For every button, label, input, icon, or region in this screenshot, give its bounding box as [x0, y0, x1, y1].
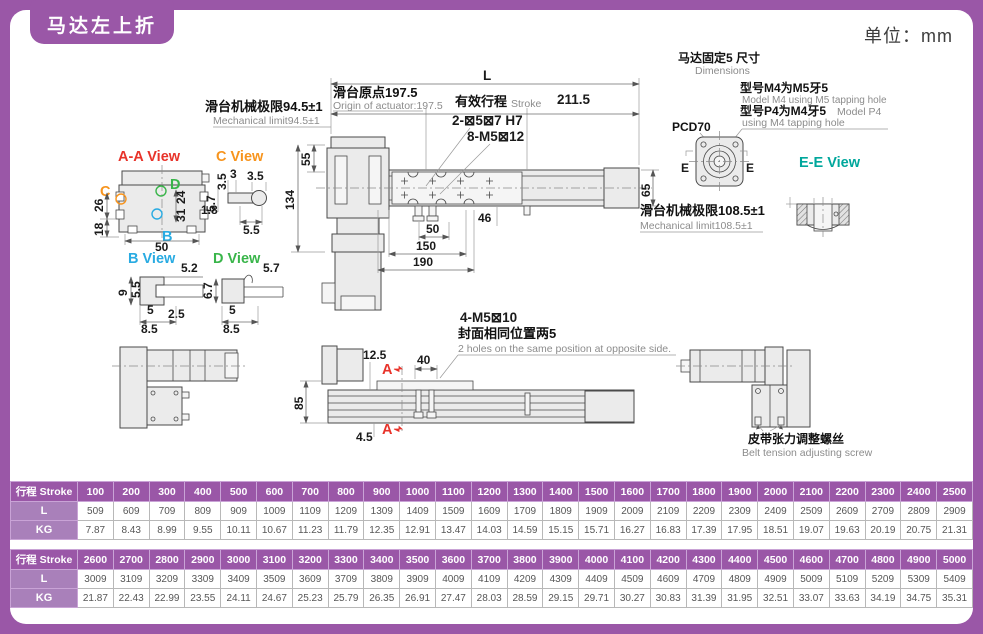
stroke-header-cell: 3000	[221, 550, 257, 570]
dim-46: 46	[478, 211, 492, 225]
value-cell: 33.63	[829, 589, 865, 608]
value-cell: 29.15	[543, 589, 579, 608]
table-row: KG7.878.438.999.5510.1110.6711.2311.7912…	[11, 521, 973, 540]
value-cell: 28.59	[507, 589, 543, 608]
d-view: D View 5.7 6.7 5 8.5	[201, 251, 283, 336]
model-m4-cn: 型号M4为M5牙5	[740, 80, 828, 95]
stroke-header-cell: 2000	[758, 482, 794, 502]
value-cell: 5009	[793, 570, 829, 589]
section-e-left: E	[681, 161, 689, 175]
value-cell: 2909	[937, 502, 973, 521]
b-dim-52: 5.2	[181, 261, 198, 275]
value-cell: 10.67	[256, 521, 292, 540]
belt-screw-cn: 皮带张力调整螺丝	[747, 431, 844, 446]
value-cell: 1509	[435, 502, 471, 521]
dim-190: 190	[413, 255, 433, 269]
value-cell: 3109	[113, 570, 149, 589]
stroke-header-cell: 5000	[937, 550, 973, 570]
stroke-header-row: 行程 Stroke2600270028002900300031003200330…	[11, 550, 973, 570]
stroke-header-cell: 4900	[901, 550, 937, 570]
mech-limit-left-en: Mechanical limit94.5±1	[213, 115, 320, 127]
value-cell: 7.87	[78, 521, 114, 540]
stroke-header-row: 行程 Stroke1002003004005006007008009001000…	[11, 482, 973, 502]
value-cell: 21.87	[78, 589, 114, 608]
ee-view-label: E-E View	[799, 155, 861, 171]
value-cell: 21.31	[937, 521, 973, 540]
value-cell: 4709	[686, 570, 722, 589]
opposite-side-en: 2 holes on the same position at opposite…	[458, 343, 671, 355]
value-cell: 19.63	[829, 521, 865, 540]
dim-134: 134	[283, 190, 297, 210]
value-cell: 34.75	[901, 589, 937, 608]
value-cell: 4809	[722, 570, 758, 589]
row-label-cell: L	[11, 570, 78, 589]
belt-screw-en: Belt tension adjusting screw	[742, 447, 873, 459]
value-cell: 809	[185, 502, 221, 521]
table-row: L300931093209330934093509360937093809390…	[11, 570, 973, 589]
stroke-header-cell: 4200	[650, 550, 686, 570]
value-cell: 9.55	[185, 521, 221, 540]
value-cell: 12.91	[400, 521, 436, 540]
value-cell: 4209	[507, 570, 543, 589]
value-cell: 709	[149, 502, 185, 521]
b-dim-9: 9	[116, 289, 130, 296]
value-cell: 29.71	[579, 589, 615, 608]
value-cell: 1309	[364, 502, 400, 521]
value-cell: 28.03	[471, 589, 507, 608]
value-cell: 1809	[543, 502, 579, 521]
value-cell: 4109	[471, 570, 507, 589]
stroke-header-cell: 2500	[937, 482, 973, 502]
value-cell: 24.11	[221, 589, 257, 608]
stroke-header-cell: 4400	[722, 550, 758, 570]
d-dim-57: 5.7	[263, 261, 280, 275]
value-cell: 3409	[221, 570, 257, 589]
pcd70-label: PCD70	[672, 120, 711, 134]
value-cell: 14.59	[507, 521, 543, 540]
section-a-top: A	[382, 362, 393, 378]
value-cell: 16.83	[650, 521, 686, 540]
spec-table: 行程 Stroke1002003004005006007008009001000…	[10, 481, 973, 540]
value-cell: 2109	[650, 502, 686, 521]
value-cell: 20.19	[865, 521, 901, 540]
stroke-label-en: Stroke	[511, 98, 542, 110]
value-cell: 2609	[829, 502, 865, 521]
stroke-header-cell: 600	[256, 482, 292, 502]
value-cell: 35.31	[937, 589, 973, 608]
value-cell: 2709	[865, 502, 901, 521]
motor-detail-view: 皮带张力调整螺丝 Belt tension adjusting screw	[676, 347, 873, 459]
value-cell: 609	[113, 502, 149, 521]
value-cell: 25.23	[292, 589, 328, 608]
value-cell: 11.79	[328, 521, 364, 540]
value-cell: 4509	[614, 570, 650, 589]
value-cell: 14.03	[471, 521, 507, 540]
value-cell: 3209	[149, 570, 185, 589]
b-dim-5: 5	[147, 303, 154, 317]
value-cell: 4909	[758, 570, 794, 589]
stroke-header-cell: 3800	[507, 550, 543, 570]
value-cell: 19.07	[793, 521, 829, 540]
value-cell: 15.71	[579, 521, 615, 540]
dim-4-5: 4.5	[356, 430, 373, 444]
value-cell: 2009	[614, 502, 650, 521]
stroke-header-cell: 2800	[149, 550, 185, 570]
value-cell: 30.83	[650, 589, 686, 608]
value-cell: 2309	[722, 502, 758, 521]
value-cell: 1609	[471, 502, 507, 521]
value-cell: 3609	[292, 570, 328, 589]
value-cell: 31.39	[686, 589, 722, 608]
stroke-header-cell: 2100	[793, 482, 829, 502]
value-cell: 17.39	[686, 521, 722, 540]
b-dim-85: 8.5	[141, 322, 158, 336]
stroke-header-label: 行程 Stroke	[11, 550, 78, 570]
table-row: L509609709809909100911091209130914091509…	[11, 502, 973, 521]
stroke-header-cell: 4000	[579, 550, 615, 570]
section-e-right: E	[746, 161, 754, 175]
stroke-header-cell: 4300	[686, 550, 722, 570]
stroke-header-cell: 1700	[650, 482, 686, 502]
dim-L: L	[483, 68, 491, 83]
row-label-cell: L	[11, 502, 78, 521]
value-cell: 20.75	[901, 521, 937, 540]
stroke-header-cell: 100	[78, 482, 114, 502]
value-cell: 24.67	[256, 589, 292, 608]
side-view: A A 12.5 40 85 4.5 4-M5⊠10 封面相同位置两5 2 ho…	[292, 310, 676, 444]
value-cell: 15.15	[543, 521, 579, 540]
value-cell: 3909	[400, 570, 436, 589]
value-cell: 4409	[579, 570, 615, 589]
value-cell: 3809	[364, 570, 400, 589]
value-cell: 13.47	[435, 521, 471, 540]
value-cell: 32.51	[758, 589, 794, 608]
stroke-header-cell: 4100	[614, 550, 650, 570]
aa-dim-18: 18	[92, 222, 106, 236]
stroke-header-cell: 4700	[829, 550, 865, 570]
stroke-header-cell: 4500	[758, 550, 794, 570]
dim-65: 65	[639, 183, 653, 197]
aa-dim-26: 26	[92, 198, 106, 212]
value-cell: 8.99	[149, 521, 185, 540]
value-cell: 33.07	[793, 589, 829, 608]
value-cell: 16.27	[614, 521, 650, 540]
stroke-header-cell: 2400	[901, 482, 937, 502]
b-view: B View 5.2 9 5.5 5 2.5 8.5	[116, 251, 203, 336]
row-label-cell: KG	[11, 521, 78, 540]
value-cell: 22.43	[113, 589, 149, 608]
value-cell: 27.47	[435, 589, 471, 608]
value-cell: 2409	[758, 502, 794, 521]
aa-view-label: A-A View	[118, 149, 181, 165]
mech-limit-left-cn: 滑台机械极限94.5±1	[205, 99, 323, 114]
value-cell: 1409	[400, 502, 436, 521]
value-cell: 509	[78, 502, 114, 521]
stroke-header-cell: 3400	[364, 550, 400, 570]
d-dim-85: 8.5	[223, 322, 240, 336]
stroke-header-cell: 1800	[686, 482, 722, 502]
dim-12-5: 12.5	[363, 348, 387, 362]
stroke-header-cell: 2900	[185, 550, 221, 570]
origin-label-en: Origin of actuator:197.5	[333, 100, 443, 112]
c-dim-55: 5.5	[243, 223, 260, 237]
value-cell: 2509	[793, 502, 829, 521]
stroke-header-cell: 3600	[435, 550, 471, 570]
table-row: KG21.8722.4322.9923.5524.1124.6725.2325.…	[11, 589, 973, 608]
value-cell: 3709	[328, 570, 364, 589]
value-cell: 1109	[292, 502, 328, 521]
value-cell: 8.43	[113, 521, 149, 540]
stroke-header-cell: 2300	[865, 482, 901, 502]
d-dim-67: 6.7	[201, 282, 215, 299]
value-cell: 17.95	[722, 521, 758, 540]
stroke-header-cell: 1600	[614, 482, 650, 502]
value-cell: 1209	[328, 502, 364, 521]
stroke-header-cell: 400	[185, 482, 221, 502]
mech-limit-right-en: Mechanical limit108.5±1	[640, 220, 753, 232]
row-label-cell: KG	[11, 589, 78, 608]
stroke-table-1: 行程 Stroke1002003004005006007008009001000…	[10, 481, 973, 540]
motor-fix-title-cn: 马达固定5 尺寸	[678, 50, 760, 65]
dim-150: 150	[416, 239, 436, 253]
mech-limit-right-cn: 滑台机械极限108.5±1	[640, 203, 765, 218]
value-cell: 2809	[901, 502, 937, 521]
stroke-header-cell: 3500	[400, 550, 436, 570]
value-cell: 5409	[937, 570, 973, 589]
value-cell: 26.35	[364, 589, 400, 608]
stroke-header-cell: 1900	[722, 482, 758, 502]
page-title-tab: 马达左上折	[30, 0, 174, 44]
value-cell: 12.35	[364, 521, 400, 540]
motor-fix-title-en: Dimensions	[695, 65, 750, 77]
stroke-table-2: 行程 Stroke2600270028002900300031003200330…	[10, 549, 973, 608]
model-p4-en: using M4 tapping hole	[742, 117, 845, 129]
datasheet-page: L 滑台原点197.5 Origin of actuator:197.5 有效行…	[0, 0, 983, 634]
value-cell: 34.19	[865, 589, 901, 608]
stroke-header-label: 行程 Stroke	[11, 482, 78, 502]
stroke-label-cn: 有效行程	[455, 94, 507, 109]
value-cell: 10.11	[221, 521, 257, 540]
stroke-header-cell: 1100	[435, 482, 471, 502]
c-dim-35a: 3.5	[215, 173, 229, 190]
b-dim-25: 2.5	[168, 307, 185, 321]
stroke-header-cell: 4800	[865, 550, 901, 570]
value-cell: 31.95	[722, 589, 758, 608]
value-cell: 30.27	[614, 589, 650, 608]
groove-d-letter: D	[170, 177, 180, 193]
value-cell: 909	[221, 502, 257, 521]
value-cell: 4009	[435, 570, 471, 589]
top-view-motor	[322, 137, 389, 310]
page-title: 马达左上折	[47, 7, 157, 38]
holes-label-1: 2-⊠5⊠7 H7	[452, 113, 523, 128]
c-view-label: C View	[216, 149, 264, 165]
dim-55: 55	[299, 152, 313, 166]
stroke-header-cell: 500	[221, 482, 257, 502]
stroke-header-cell: 800	[328, 482, 364, 502]
stroke-header-cell: 3200	[292, 550, 328, 570]
section-a-bottom: A	[382, 422, 393, 438]
value-cell: 11.23	[292, 521, 328, 540]
value-cell: 1009	[256, 502, 292, 521]
c-dim-18: 1.8	[201, 203, 218, 217]
unit-label: 单位：mm	[864, 22, 953, 48]
value-cell: 5109	[829, 570, 865, 589]
stroke-header-cell: 300	[149, 482, 185, 502]
value-cell: 1909	[579, 502, 615, 521]
stroke-header-cell: 2600	[78, 550, 114, 570]
groove-c-letter: C	[100, 184, 111, 200]
stroke-header-cell: 3300	[328, 550, 364, 570]
aa-view: A-A View C D B 26 18 50	[92, 149, 209, 254]
value-cell: 5309	[901, 570, 937, 589]
b-dim-55: 5.5	[129, 281, 143, 298]
stroke-header-cell: 1500	[579, 482, 615, 502]
value-cell: 3009	[78, 570, 114, 589]
stroke-header-cell: 1300	[507, 482, 543, 502]
aa-dim-31: 31	[174, 208, 188, 222]
model-p4-cn: 型号P4为M4牙5	[740, 103, 826, 118]
d-view-label: D View	[213, 251, 261, 267]
c-view: C View 3.5 3 3.5 5.7 1.8 5.5	[201, 149, 267, 237]
value-cell: 2209	[686, 502, 722, 521]
value-cell: 1709	[507, 502, 543, 521]
stroke-header-cell: 4600	[793, 550, 829, 570]
spec-table: 行程 Stroke2600270028002900300031003200330…	[10, 549, 973, 608]
b-view-label: B View	[128, 251, 176, 267]
stroke-header-cell: 2200	[829, 482, 865, 502]
stroke-header-cell: 3700	[471, 550, 507, 570]
value-cell: 3509	[256, 570, 292, 589]
value-cell: 26.91	[400, 589, 436, 608]
stroke-header-cell: 900	[364, 482, 400, 502]
c-dim-3: 3	[230, 167, 237, 181]
stroke-header-cell: 1000	[400, 482, 436, 502]
value-cell: 23.55	[185, 589, 221, 608]
d-dim-5: 5	[229, 303, 236, 317]
dim-50: 50	[426, 222, 440, 236]
holes-label-2: 8-M5⊠12	[467, 129, 524, 144]
value-cell: 5209	[865, 570, 901, 589]
m5-holes-label: 4-M5⊠10	[460, 310, 517, 325]
dim-85: 85	[292, 396, 306, 410]
value-cell: 22.99	[149, 589, 185, 608]
dim-211-5: 211.5	[557, 92, 591, 107]
c-dim-35b: 3.5	[247, 169, 264, 183]
front-view	[112, 347, 245, 428]
aa-dim-24: 24	[174, 190, 188, 204]
ee-view: E-E View	[786, 155, 861, 237]
value-cell: 18.51	[758, 521, 794, 540]
origin-label-cn: 滑台原点197.5	[333, 85, 418, 100]
stroke-header-cell: 1400	[543, 482, 579, 502]
stroke-header-cell: 700	[292, 482, 328, 502]
stroke-header-cell: 1200	[471, 482, 507, 502]
stroke-header-cell: 3100	[256, 550, 292, 570]
value-cell: 3309	[185, 570, 221, 589]
stroke-header-cell: 200	[113, 482, 149, 502]
value-cell: 4309	[543, 570, 579, 589]
stroke-header-cell: 3900	[543, 550, 579, 570]
dim-40: 40	[417, 353, 431, 367]
stroke-header-cell: 2700	[113, 550, 149, 570]
value-cell: 25.79	[328, 589, 364, 608]
opposite-side-cn: 封面相同位置两5	[458, 326, 556, 341]
value-cell: 4609	[650, 570, 686, 589]
